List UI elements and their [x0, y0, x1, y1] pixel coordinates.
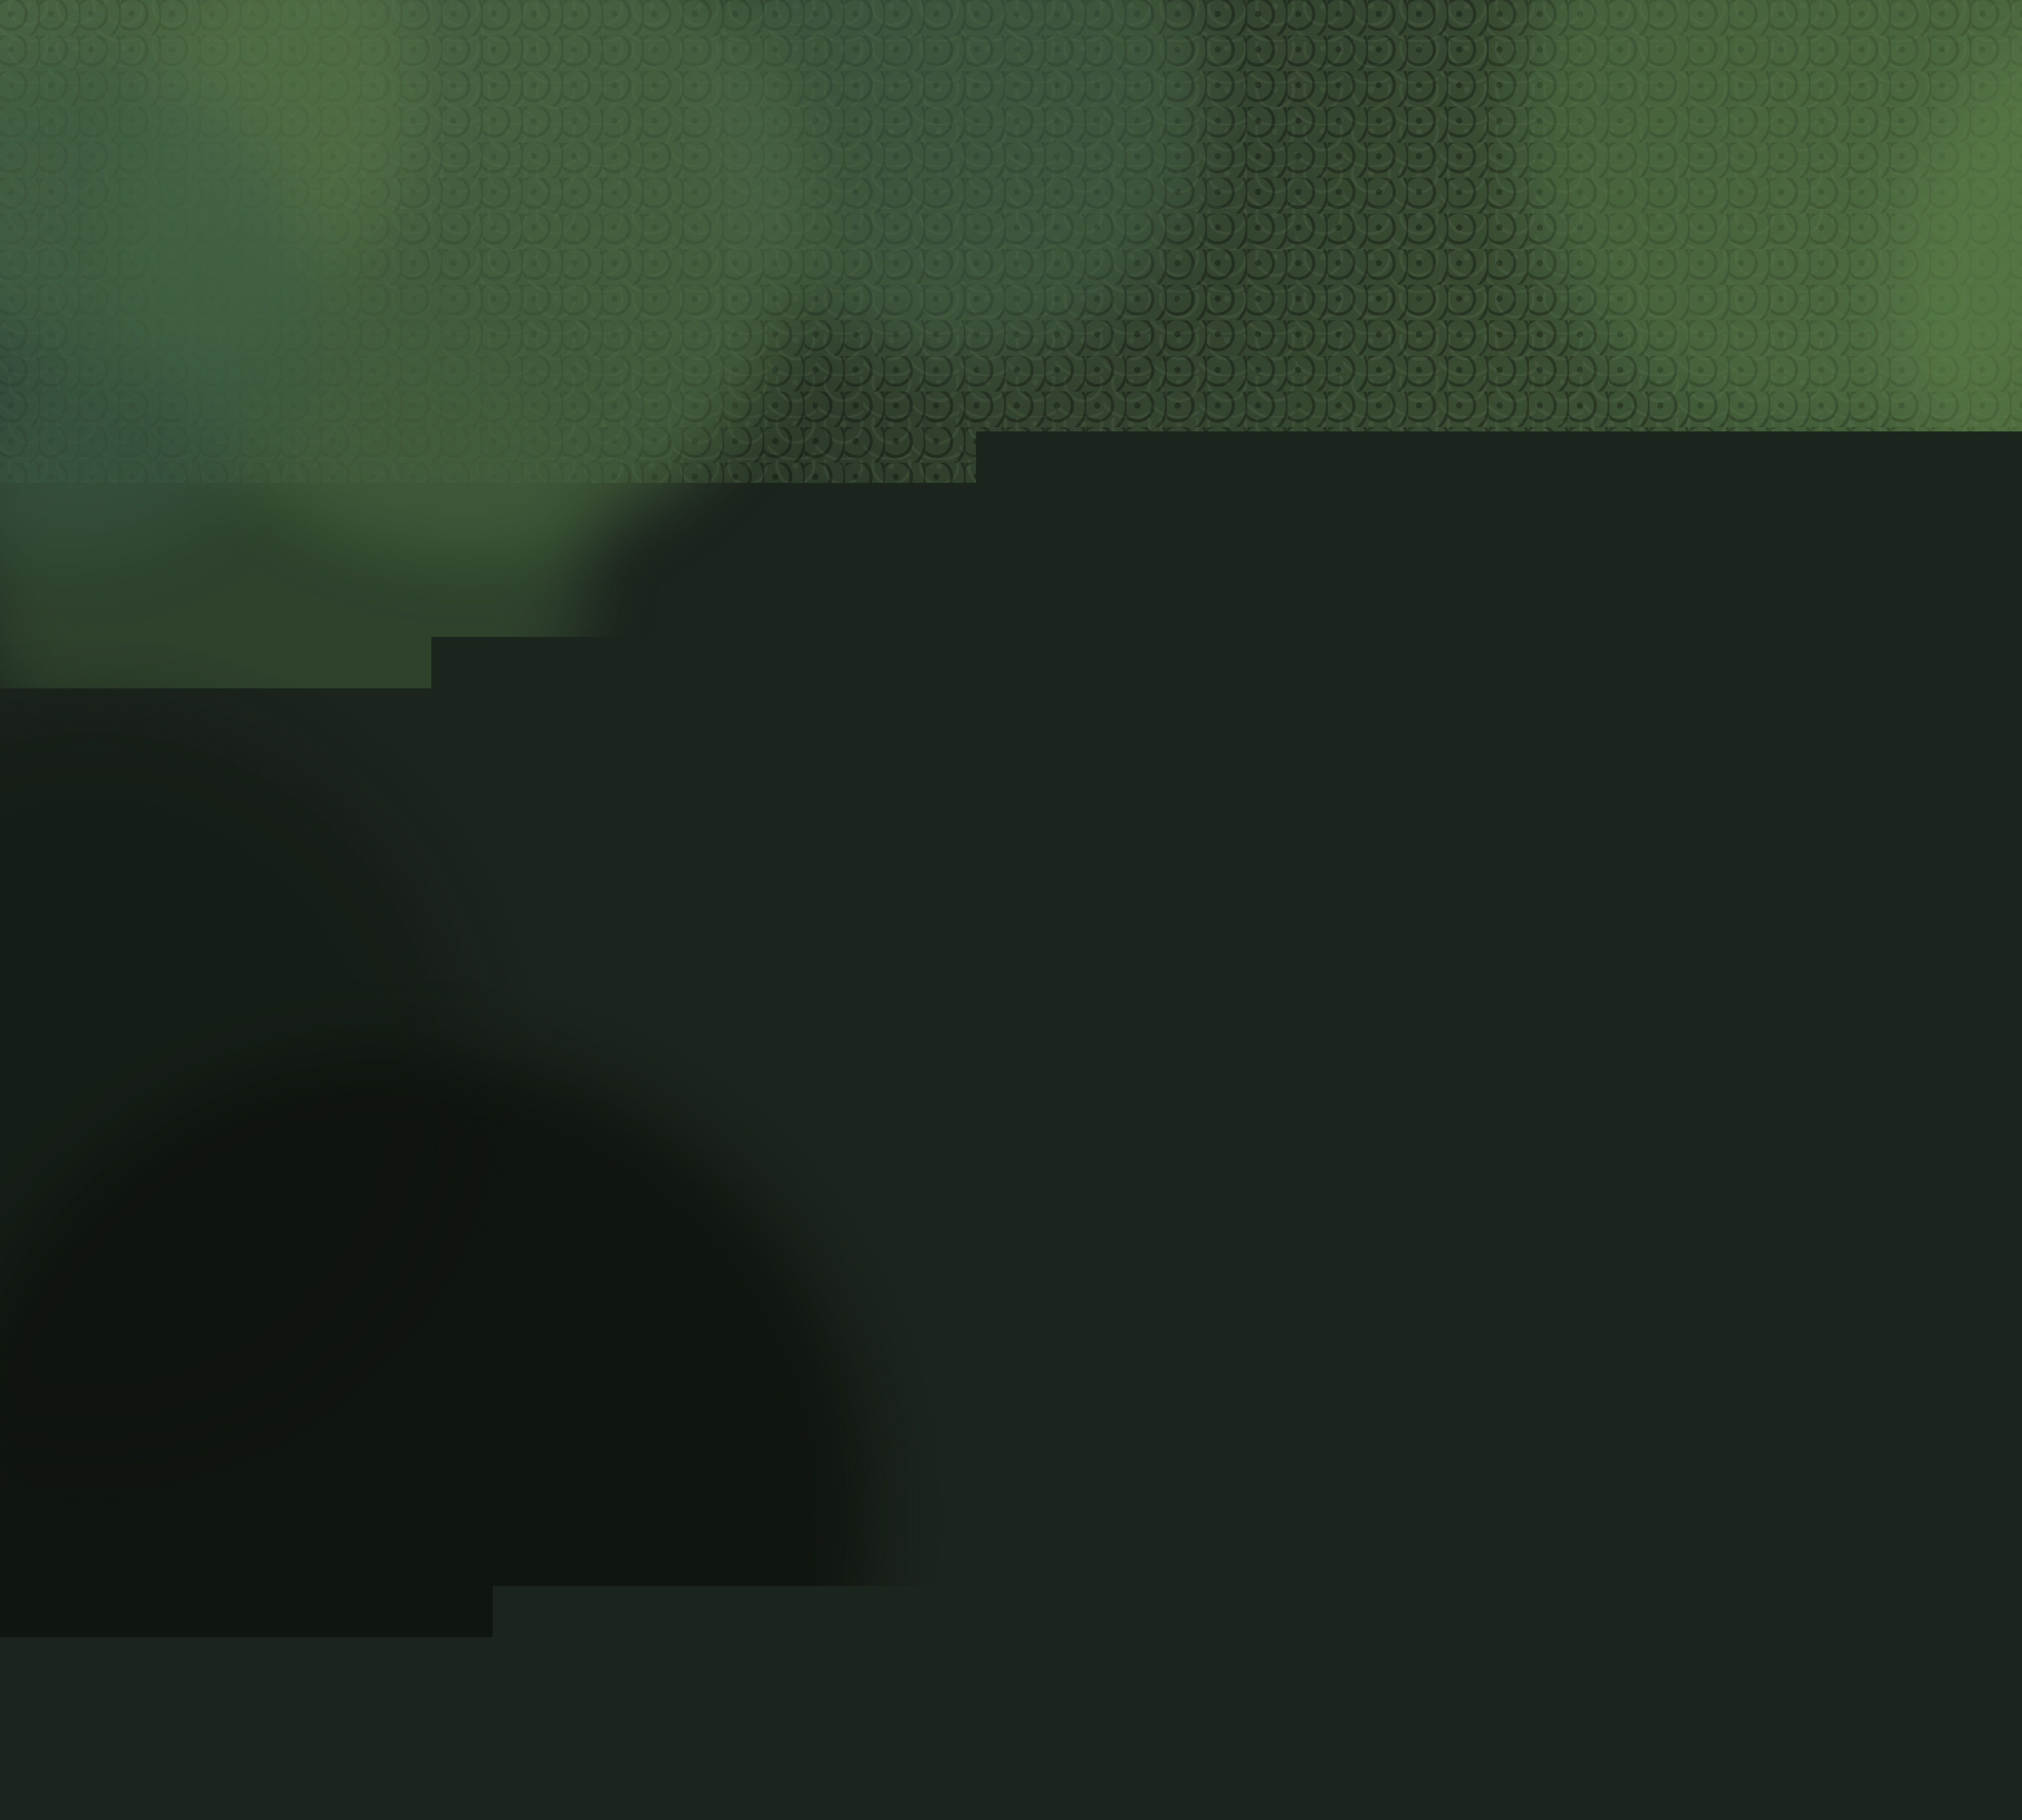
mist-patch [867, 1486, 1733, 1820]
mist-patch [665, 511, 1129, 758]
mist-layer [0, 0, 2022, 1820]
mist-patch [0, 1331, 588, 1733]
scene-world [0, 0, 2022, 1820]
aerial-rendering-industrial-park [0, 0, 2022, 1820]
mist-patch [186, 47, 990, 449]
mist-patch [1625, 0, 2022, 341]
mist-patch [1919, 464, 2022, 774]
